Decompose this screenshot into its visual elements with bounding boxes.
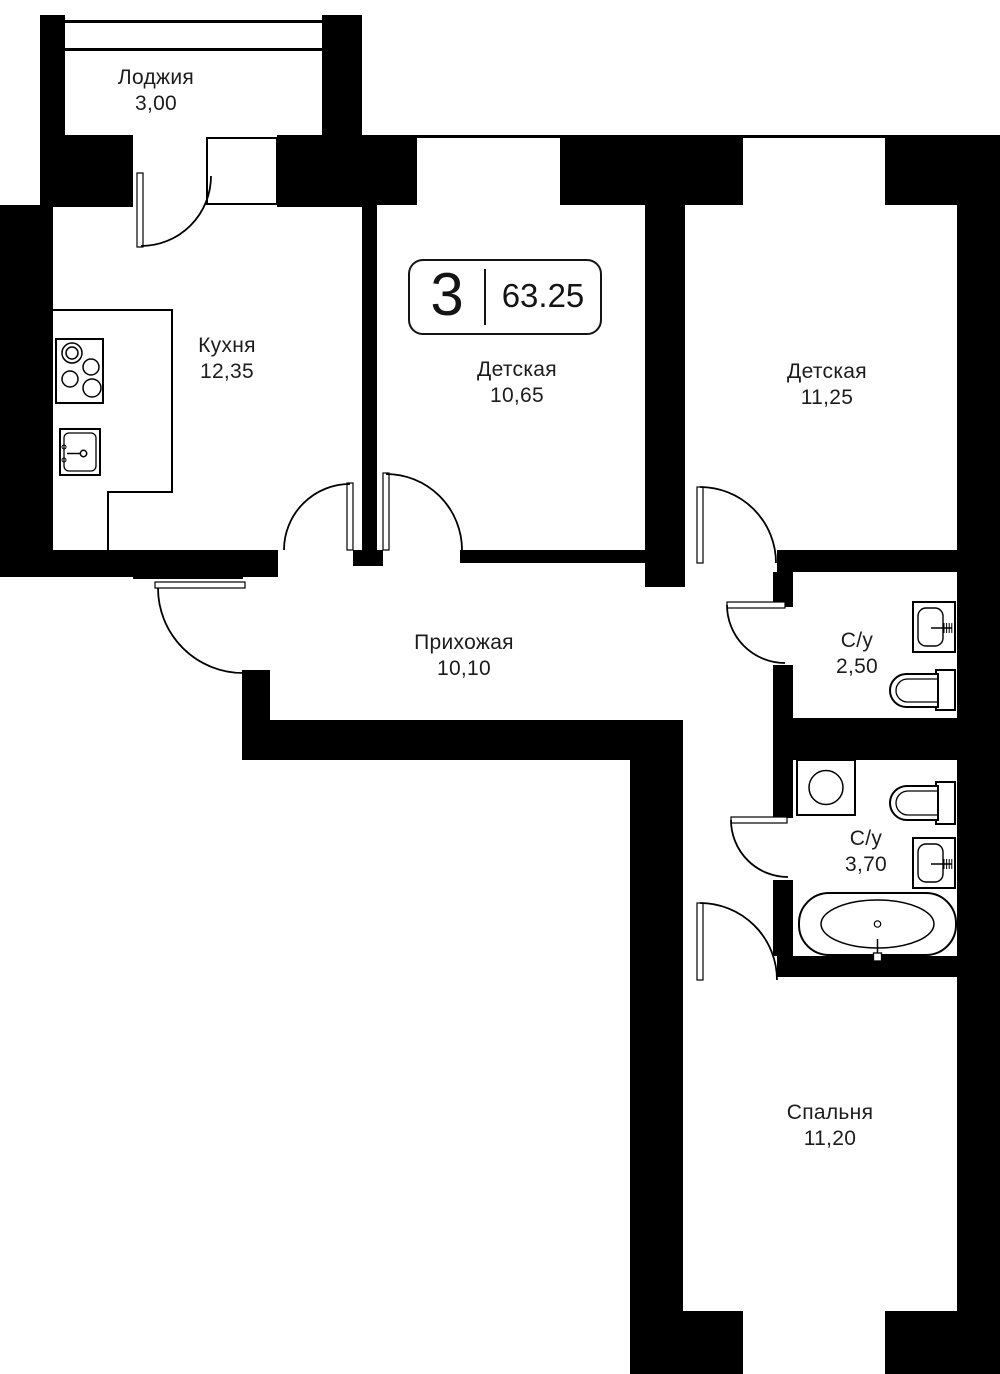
wall xyxy=(40,15,65,207)
wall xyxy=(322,15,362,207)
thin-line xyxy=(171,309,173,493)
wall xyxy=(957,205,1000,1374)
room-label-kitchen: Кухня12,35 xyxy=(198,333,256,385)
room-area: 3,70 xyxy=(845,852,887,878)
wall xyxy=(773,880,793,956)
room-area: 11,20 xyxy=(787,1126,873,1152)
bedroom-door-arc xyxy=(700,903,777,980)
wall xyxy=(362,135,417,205)
bathroom-2-door-arc xyxy=(731,820,788,877)
washing-machine-icon xyxy=(797,760,855,815)
window-frame xyxy=(207,138,277,204)
floor-plan-drawing xyxy=(0,0,1000,1374)
badge-room-count: 3 xyxy=(410,265,484,329)
wall xyxy=(773,665,793,718)
room-label-bedroom: Спальня11,20 xyxy=(787,1100,873,1152)
stove-icon-burner xyxy=(62,371,78,387)
room-name: С/у xyxy=(845,826,887,852)
room-label-nursery-1: Детская10,65 xyxy=(477,357,557,409)
room-name: Лоджия xyxy=(118,65,194,91)
bathroom-1-door-arc xyxy=(727,605,785,663)
badge-total-area: 63.25 xyxy=(486,277,600,317)
thin-line xyxy=(65,20,322,23)
bathroom-2-door-leaf xyxy=(731,817,787,823)
kitchen-door-arc xyxy=(284,484,350,550)
wall xyxy=(885,135,1000,205)
thin-line xyxy=(107,491,109,577)
room-name: Кухня xyxy=(198,333,256,359)
stove-icon-burner xyxy=(83,359,99,375)
wall xyxy=(885,1311,1000,1374)
wall xyxy=(773,718,957,760)
wall xyxy=(362,205,377,550)
room-name: Спальня xyxy=(787,1100,873,1126)
room-area: 3,00 xyxy=(118,91,194,117)
wall xyxy=(133,573,243,579)
thin-line xyxy=(108,491,173,493)
room-label-hallway: Прихожая10,10 xyxy=(414,630,514,682)
room-label-loggia: Лоджия3,00 xyxy=(118,65,194,117)
wall xyxy=(277,135,322,207)
wall xyxy=(0,205,53,577)
room-name: С/у xyxy=(836,628,878,654)
apartment-badge: 3 63.25 xyxy=(408,259,602,335)
wall xyxy=(777,956,960,977)
room-area: 10,65 xyxy=(477,383,557,409)
wall xyxy=(0,550,278,577)
nursery-1-door-leaf xyxy=(383,473,389,550)
room-area: 12,35 xyxy=(198,359,256,385)
nursery-2-door-arc xyxy=(700,487,776,563)
washbasin-2-icon-bowl xyxy=(918,844,943,882)
kitchen-sink-icon-tap-knob xyxy=(80,450,86,456)
room-name: Детская xyxy=(477,357,557,383)
room-area: 2,50 xyxy=(836,654,878,680)
balcony-door-arc xyxy=(141,176,211,246)
floor-plan: Лоджия3,00Кухня12,35Детская10,65Детская1… xyxy=(0,0,1000,1374)
wall xyxy=(630,760,683,1374)
bathroom-1-door-leaf xyxy=(727,602,785,608)
nursery-2-door-leaf xyxy=(697,487,703,563)
room-area: 11,25 xyxy=(787,385,867,411)
thin-line xyxy=(53,309,173,311)
nursery-1-door-arc xyxy=(386,474,462,550)
stove-icon-burner xyxy=(62,343,82,363)
wall xyxy=(460,550,645,563)
wall xyxy=(242,670,270,760)
room-label-nursery-2: Детская11,25 xyxy=(787,359,867,411)
entrance-door-arc xyxy=(158,588,243,673)
wall xyxy=(560,135,743,205)
bathtub-icon-faucet-base xyxy=(874,953,882,961)
wall xyxy=(65,135,133,207)
wall xyxy=(773,760,793,818)
entrance-door-leaf xyxy=(155,582,245,588)
kitchen-door-leaf xyxy=(347,483,353,550)
room-name: Прихожая xyxy=(414,630,514,656)
stove-icon-burner xyxy=(83,379,101,397)
wall xyxy=(353,550,383,566)
wall xyxy=(777,550,957,572)
room-label-bathroom-2: С/у3,70 xyxy=(845,826,887,878)
wall xyxy=(630,1311,743,1374)
stove-icon-burner xyxy=(66,347,78,359)
room-name: Детская xyxy=(787,359,867,385)
wall xyxy=(270,720,683,760)
room-label-bathroom-1: С/у2,50 xyxy=(836,628,878,680)
washbasin-1-icon-bowl xyxy=(918,608,943,646)
room-area: 10,10 xyxy=(414,656,514,682)
wall xyxy=(645,205,685,587)
thin-line xyxy=(65,48,322,51)
thin-line xyxy=(362,135,1000,138)
bedroom-door-leaf xyxy=(697,903,703,980)
balcony-door-leaf xyxy=(137,173,143,247)
